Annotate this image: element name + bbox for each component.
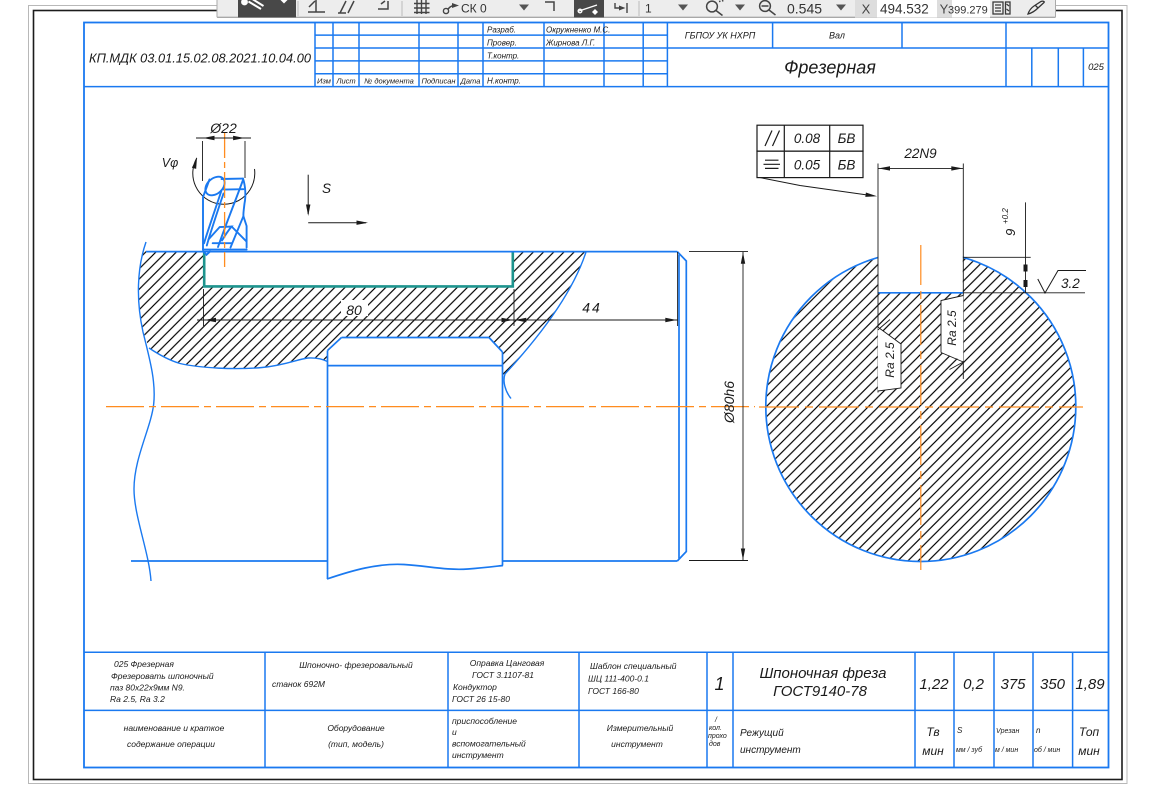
svg-text:S: S [322, 181, 331, 196]
svg-text:Т.контр.: Т.контр. [487, 51, 519, 60]
svg-text:Изм: Изм [317, 77, 331, 86]
svg-text:0.05: 0.05 [794, 158, 821, 173]
svg-text:Подписан: Подписан [421, 77, 455, 86]
svg-text:Тв: Тв [926, 725, 939, 739]
svg-text:СК 0: СК 0 [461, 2, 487, 16]
svg-text:375: 375 [1000, 676, 1026, 693]
svg-text:Оборудование: Оборудование [327, 723, 385, 733]
svg-text:и: и [452, 727, 457, 737]
svg-text:Режущий: Режущий [740, 728, 784, 739]
svg-text:Вал: Вал [829, 31, 845, 41]
svg-text:паз 80х22х9мм N9.: паз 80х22х9мм N9. [110, 683, 185, 693]
svg-text:Ra 2.5: Ra 2.5 [945, 310, 959, 346]
svg-text:Провер.: Провер. [487, 38, 517, 47]
svg-text:(тип, модель): (тип, модель) [328, 739, 384, 749]
svg-text:80: 80 [346, 302, 362, 318]
svg-text:м / мин: м / мин [995, 747, 1018, 754]
svg-text:+0.2: +0.2 [1001, 208, 1010, 224]
svg-text:дов: дов [709, 740, 721, 748]
svg-text:1: 1 [714, 674, 724, 694]
svg-text:мин: мин [922, 744, 944, 758]
svg-text:Окружненко М.С.: Окружненко М.С. [546, 26, 610, 35]
svg-text:Vφ: Vφ [162, 156, 179, 170]
svg-text:44: 44 [582, 300, 602, 316]
svg-text:ГОСТ 26 15-80: ГОСТ 26 15-80 [452, 694, 510, 704]
svg-text:Кондуктор: Кондуктор [453, 682, 497, 692]
svg-text:содержание операции: содержание операции [127, 739, 215, 749]
svg-text:Дата: Дата [460, 77, 481, 86]
svg-text:025: 025 [1088, 62, 1105, 73]
svg-text:Ra 2.5, Ra 3.2: Ra 2.5, Ra 3.2 [110, 694, 165, 704]
svg-text:БВ: БВ [838, 131, 856, 146]
svg-text:025 Фрезерная: 025 Фрезерная [114, 659, 174, 669]
svg-text:Ø22: Ø22 [209, 120, 237, 136]
svg-text:вспомогательный: вспомогательный [452, 739, 526, 749]
svg-text:Vрезан: Vрезан [996, 728, 1019, 735]
svg-text:Топ: Топ [1079, 725, 1100, 739]
svg-text:Ø80h6: Ø80h6 [721, 381, 737, 424]
svg-text:ГОСТ 166-80: ГОСТ 166-80 [588, 686, 639, 696]
svg-text:ГБПОУ УК НХРП: ГБПОУ УК НХРП [685, 31, 756, 41]
svg-text:Фрезерная: Фрезерная [784, 58, 876, 78]
svg-text:ГОСТ 3.1107-81: ГОСТ 3.1107-81 [472, 670, 534, 680]
svg-text:0.08: 0.08 [794, 131, 821, 146]
svg-text:3.2: 3.2 [1061, 276, 1080, 291]
svg-text:БВ: БВ [838, 158, 856, 173]
svg-text:Шпоночно- фрезеровальный: Шпоночно- фрезеровальный [299, 660, 413, 670]
svg-text:Разраб.: Разраб. [487, 26, 516, 35]
svg-text:об / мин: об / мин [1034, 746, 1060, 754]
svg-text:Фрезеровать шпоночный: Фрезеровать шпоночный [111, 671, 214, 681]
svg-text:Оправка Цанговая: Оправка Цанговая [470, 658, 545, 668]
svg-text:прохо: прохо [708, 733, 727, 740]
svg-text:S: S [957, 726, 963, 735]
svg-text:X: X [862, 2, 871, 17]
svg-text:кол.: кол. [709, 725, 722, 732]
svg-text:приспособление: приспособление [452, 716, 517, 726]
svg-text:22N9: 22N9 [903, 146, 937, 161]
svg-text:0,2: 0,2 [963, 676, 985, 693]
svg-text:ГОСТ9140-78: ГОСТ9140-78 [773, 683, 868, 700]
svg-text:1,22: 1,22 [919, 676, 949, 693]
svg-text:1,89: 1,89 [1075, 676, 1105, 693]
svg-text:Ra 2.5: Ra 2.5 [883, 342, 897, 378]
svg-text:инструмент: инструмент [611, 739, 663, 749]
svg-text:n: n [1036, 726, 1041, 735]
svg-text:Жирнова Л.Г.: Жирнова Л.Г. [545, 38, 595, 47]
svg-text:инструмент: инструмент [740, 745, 801, 756]
svg-text:КП.МДК 03.01.15.02.08.2021.10.: КП.МДК 03.01.15.02.08.2021.10.04.00 [89, 51, 312, 66]
svg-text:Лист: Лист [335, 77, 355, 86]
svg-text:399.279: 399.279 [948, 5, 988, 17]
svg-text:мм / зуб: мм / зуб [956, 746, 983, 754]
svg-text:мин: мин [1078, 744, 1100, 758]
svg-text:Шаблон специальный: Шаблон специальный [590, 661, 677, 671]
svg-text:0.545: 0.545 [787, 1, 822, 17]
svg-text:ШЦ 111-400-0.1: ШЦ 111-400-0.1 [588, 674, 649, 684]
svg-text:Н.контр.: Н.контр. [487, 77, 521, 86]
svg-text:494.532: 494.532 [880, 2, 929, 17]
svg-text:Измерительный: Измерительный [607, 723, 674, 733]
svg-text:350: 350 [1040, 676, 1066, 693]
svg-text:Шпоночная фреза: Шпоночная фреза [759, 665, 886, 682]
svg-text:станок 692М: станок 692М [272, 679, 326, 689]
svg-text:9: 9 [1003, 229, 1018, 236]
svg-text:№ документа: № документа [364, 77, 414, 86]
svg-text:1: 1 [645, 2, 652, 16]
svg-text:наименование и краткое: наименование и краткое [124, 723, 225, 733]
svg-text:инструмент: инструмент [452, 750, 504, 760]
